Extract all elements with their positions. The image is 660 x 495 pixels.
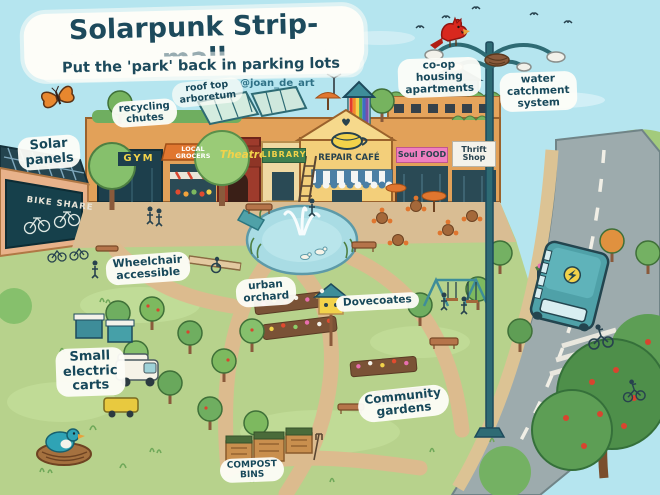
gym-sign: GYM [118,152,160,166]
thrift-shop-sign: Thrift Shop [452,141,496,167]
label-wheelchair-accessible: Wheelchair accessible [105,251,190,285]
label-urban-orchard: urban orchard [235,276,297,308]
repair-cafe-sign: REPAIR CAFÉ [312,152,386,165]
label-compost-bins: COMPOST BINS [220,457,285,483]
label-water-catchment-system: water catchment system [499,71,577,113]
soul-food-sign: Soul FOOD [396,147,448,163]
repair-cafe-awning [312,170,393,189]
artist-credit: @joan_de_art [240,78,315,89]
label-coop-housing-apartments: co-op housing apartments [397,57,481,99]
illustration-stage: Solarpunk Strip-mall Put the 'park' back… [0,0,660,495]
pond [247,206,357,274]
label-solar-panels: Solar panels [17,134,82,171]
label-small-electric-carts: Small electric carts [55,347,125,397]
library-sign: LIBRARY [262,148,306,163]
label-recycling-chutes: recycling chutes [111,98,178,129]
kiosk-cart-icon [74,314,104,338]
local-grocers-sign: LOCAL GROCERS [170,145,216,160]
theatre-sign: Theatre [222,147,264,165]
